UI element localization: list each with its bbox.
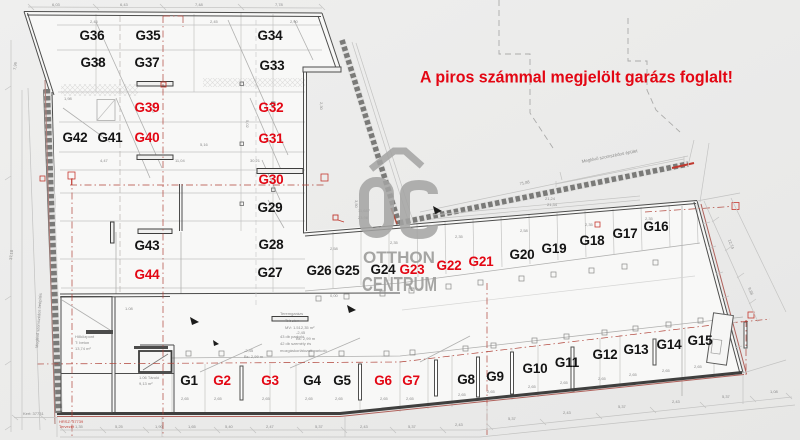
svg-text:G4: G4 xyxy=(303,373,321,388)
svg-text:G42: G42 xyxy=(63,130,88,145)
svg-text:2,90: 2,90 xyxy=(290,19,299,24)
svg-text:G26: G26 xyxy=(307,263,333,278)
svg-text:2,35: 2,35 xyxy=(455,234,464,239)
svg-text:5,02: 5,02 xyxy=(245,120,250,129)
svg-text:G21: G21 xyxy=(469,254,495,269)
svg-text:G7: G7 xyxy=(402,373,420,388)
svg-text:13,74 m²: 13,74 m² xyxy=(75,346,91,351)
svg-text:G3: G3 xyxy=(261,373,279,388)
svg-text:5,37: 5,37 xyxy=(508,416,517,421)
svg-text:21,24: 21,24 xyxy=(545,196,556,201)
svg-text:2,65: 2,65 xyxy=(214,396,223,401)
svg-text:G19: G19 xyxy=(542,241,567,256)
svg-text:G40: G40 xyxy=(135,130,160,145)
svg-text:1.08: 1.08 xyxy=(125,306,134,311)
svg-text:G20: G20 xyxy=(510,247,535,262)
svg-text:G35: G35 xyxy=(136,28,162,43)
svg-text:2,65: 2,65 xyxy=(380,396,389,401)
svg-text:2,65: 2,65 xyxy=(662,368,671,373)
svg-text:G16: G16 xyxy=(644,219,670,234)
svg-text:2,65: 2,65 xyxy=(335,396,344,401)
svg-text:G39: G39 xyxy=(135,100,160,115)
svg-text:2,65: 2,65 xyxy=(598,376,607,381)
svg-text:G31: G31 xyxy=(259,131,285,146)
svg-text:2,30: 2,30 xyxy=(319,102,324,111)
svg-text:1,65: 1,65 xyxy=(188,424,197,429)
svg-text:7,78: 7,78 xyxy=(275,2,284,7)
svg-text:42 db személy és: 42 db személy és xyxy=(280,341,311,346)
svg-text:5,37: 5,37 xyxy=(618,404,627,409)
svg-text:21,34: 21,34 xyxy=(547,202,558,207)
svg-text:2,65: 2,65 xyxy=(181,396,190,401)
svg-text:G23: G23 xyxy=(400,262,426,277)
svg-text:2,65: 2,65 xyxy=(528,384,537,389)
svg-text:7,48: 7,48 xyxy=(195,2,204,7)
svg-text:1.06 Tároló: 1.06 Tároló xyxy=(139,375,160,380)
svg-text:5,25: 5,25 xyxy=(115,424,124,429)
svg-text:9,13 m²: 9,13 m² xyxy=(139,381,153,386)
svg-text:6,03: 6,03 xyxy=(52,2,61,7)
svg-text:G41: G41 xyxy=(98,130,124,145)
svg-text:G14: G14 xyxy=(657,337,683,352)
svg-text:2,65: 2,65 xyxy=(406,396,415,401)
svg-text:2,65: 2,65 xyxy=(629,372,638,377)
svg-text:Bs: 2,99 m: Bs: 2,99 m xyxy=(296,336,316,341)
svg-text:4,47: 4,47 xyxy=(100,158,109,163)
svg-text:2,58: 2,58 xyxy=(330,246,339,251)
svg-text:G12: G12 xyxy=(593,347,618,362)
svg-text:G18: G18 xyxy=(580,233,606,248)
svg-text:G15: G15 xyxy=(688,333,714,348)
svg-text:2,45: 2,45 xyxy=(210,19,219,24)
svg-text:G33: G33 xyxy=(260,58,286,73)
svg-text:-2,45: -2,45 xyxy=(244,348,254,353)
svg-text:2,65: 2,65 xyxy=(262,396,271,401)
svg-text:G11: G11 xyxy=(555,355,580,370)
svg-text:1,98: 1,98 xyxy=(64,96,73,101)
svg-text:2,58: 2,58 xyxy=(520,228,529,233)
svg-text:G5: G5 xyxy=(333,373,351,388)
svg-text:2,35: 2,35 xyxy=(585,222,594,227)
svg-text:2,65: 2,65 xyxy=(458,392,467,397)
svg-text:G30: G30 xyxy=(259,172,284,187)
svg-text:5,37: 5,37 xyxy=(408,424,417,429)
svg-text:G17: G17 xyxy=(613,226,638,241)
svg-text:G37: G37 xyxy=(135,55,160,70)
svg-text:G2: G2 xyxy=(213,373,231,388)
svg-text:T: beton: T: beton xyxy=(285,318,299,323)
svg-text:G38: G38 xyxy=(81,55,107,70)
svg-text:Tervezet: Tervezet xyxy=(59,424,75,429)
svg-text:Bs: 2,99 m: Bs: 2,99 m xyxy=(244,354,264,359)
svg-text:G10: G10 xyxy=(523,361,548,376)
svg-text:2,45: 2,45 xyxy=(90,19,99,24)
svg-text:G9: G9 xyxy=(486,369,504,384)
svg-text:G29: G29 xyxy=(258,200,283,215)
svg-text:G1: G1 xyxy=(180,373,198,388)
svg-text:2,43: 2,43 xyxy=(563,410,572,415)
svg-text:2,43: 2,43 xyxy=(672,399,681,404)
svg-text:0,00: 0,00 xyxy=(330,293,339,298)
svg-text:G8: G8 xyxy=(457,372,475,387)
svg-text:G25: G25 xyxy=(335,263,361,278)
svg-text:Teremgarázs: Teremgarázs xyxy=(280,311,303,316)
svg-text:-2,45: -2,45 xyxy=(296,330,306,335)
svg-text:G27: G27 xyxy=(258,265,283,280)
svg-text:5,37: 5,37 xyxy=(722,394,731,399)
svg-text:Hőközpont: Hőközpont xyxy=(75,334,95,339)
svg-text:2,65: 2,65 xyxy=(305,396,314,401)
svg-text:5,40: 5,40 xyxy=(225,424,234,429)
svg-text:11,04: 11,04 xyxy=(175,158,185,163)
svg-text:2,35: 2,35 xyxy=(390,240,399,245)
svg-text:A piros számmal megjelölt gará: A piros számmal megjelölt garázs foglalt… xyxy=(420,68,733,87)
svg-text:G28: G28 xyxy=(259,237,285,252)
svg-text:30,21: 30,21 xyxy=(250,158,261,163)
svg-text:5,16: 5,16 xyxy=(200,142,209,147)
svg-text:G24: G24 xyxy=(371,262,397,277)
svg-text:1,08: 1,08 xyxy=(770,389,779,394)
svg-text:2,43: 2,43 xyxy=(360,424,369,429)
svg-text:1,90: 1,90 xyxy=(155,424,164,429)
svg-text:G34: G34 xyxy=(258,28,284,43)
svg-text:G44: G44 xyxy=(135,267,161,282)
svg-text:Kert: 37731: Kert: 37731 xyxy=(23,411,44,416)
svg-text:G32: G32 xyxy=(259,100,284,115)
svg-text:6,43: 6,43 xyxy=(120,2,129,7)
svg-text:G6: G6 xyxy=(374,373,392,388)
svg-text:G43: G43 xyxy=(135,238,161,253)
svg-text:G13: G13 xyxy=(624,342,650,357)
svg-text:2,43: 2,43 xyxy=(455,422,464,427)
svg-text:G36: G36 xyxy=(80,28,106,43)
svg-text:T: beton: T: beton xyxy=(75,340,89,345)
svg-text:G22: G22 xyxy=(437,258,462,273)
svg-text:7,96: 7,96 xyxy=(12,61,18,70)
svg-text:2,47: 2,47 xyxy=(266,424,275,429)
svg-text:5,37: 5,37 xyxy=(315,424,324,429)
svg-text:2,65: 2,65 xyxy=(694,364,703,369)
svg-text:2,65: 2,65 xyxy=(560,380,569,385)
svg-text:1,35: 1,35 xyxy=(75,424,84,429)
svg-text:2,65: 2,65 xyxy=(487,389,496,394)
svg-text:mozgáskorlátozott parkoló: mozgáskorlátozott parkoló xyxy=(280,348,327,353)
